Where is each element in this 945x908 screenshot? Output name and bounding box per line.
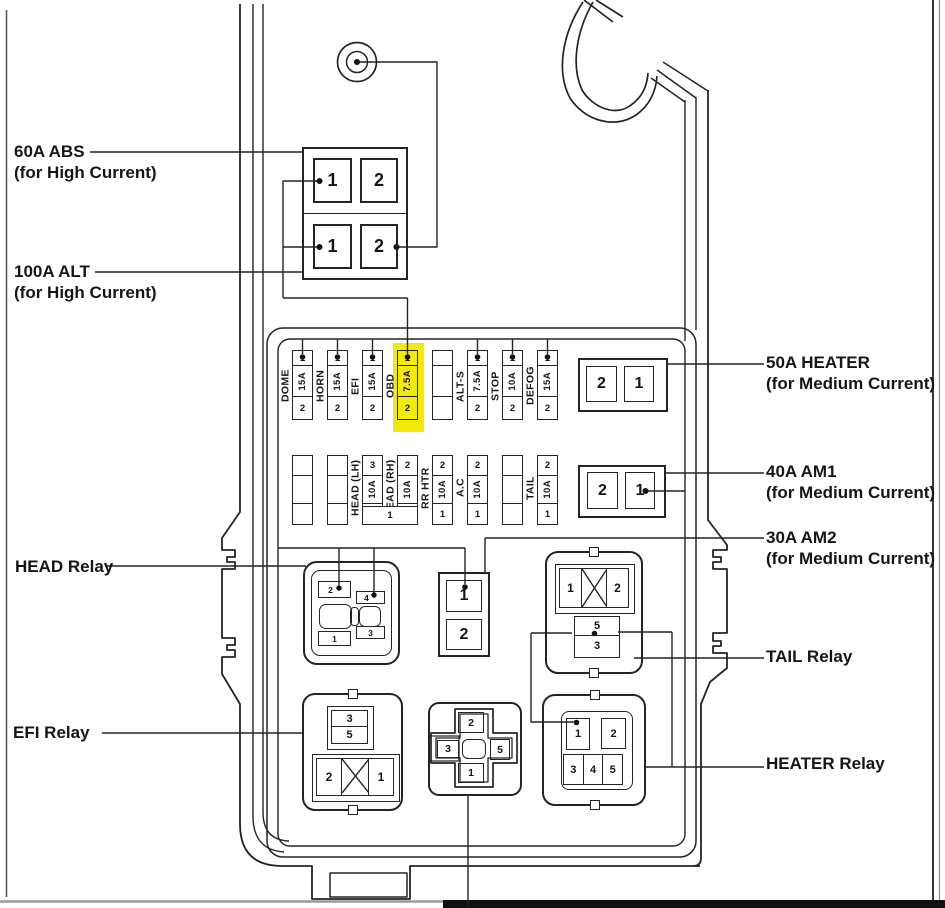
fuse-name: [419, 344, 432, 428]
fuse-amp: 7.5A: [472, 370, 483, 392]
fuse-name: OBD: [384, 344, 397, 428]
alt-terminal-2: 2: [360, 224, 398, 269]
fuse: [327, 455, 348, 525]
label-sub: (for Medium Current): [766, 373, 935, 394]
label-sub: (for Medium Current): [766, 482, 935, 503]
pin-4: 4: [356, 591, 385, 604]
label-100a-alt: 100A ALT (for High Current): [14, 261, 157, 303]
heater-50a-block: 2 1: [578, 358, 668, 412]
abs-terminal-1: 1: [313, 158, 352, 203]
pin-5: 5: [490, 739, 510, 760]
fuse-amp: 10A: [437, 480, 448, 499]
fuse-name: [489, 435, 502, 541]
pin-1: 1: [458, 763, 484, 783]
fuse-slot-tail: TAIL 2 10A 1: [523, 455, 558, 525]
pin-5: 5: [332, 727, 367, 743]
box-outer-wall-right: [693, 90, 727, 866]
fuse-amp: 10A: [367, 480, 378, 499]
alt-terminal-1: 1: [313, 224, 352, 269]
relay-tab: [590, 690, 600, 700]
relay-coil-x: [581, 569, 607, 607]
relay-contact-blob: [319, 604, 352, 629]
fuse: 1 7.5A 2: [467, 350, 488, 420]
fuse-amp: 15A: [542, 372, 553, 391]
terminal-2: 2: [586, 366, 617, 402]
terminal-1: 1: [446, 580, 482, 612]
bottom-tab-inner: [330, 873, 407, 897]
fuse-slot-horn: HORN 1 15A 2: [313, 350, 348, 420]
label-heater-relay: HEATER Relay: [766, 753, 885, 774]
pin-3: 3: [356, 626, 385, 639]
pin-2: 2: [318, 581, 351, 598]
fuse: 1 7.5A 2: [397, 350, 418, 420]
relay-contact-tab: [350, 607, 359, 626]
fuse: [502, 455, 523, 525]
fuse: 2 10A 1: [432, 455, 453, 525]
fuse-name: DOME: [279, 344, 292, 428]
fuse: 1 15A 2: [292, 350, 313, 420]
relay-tab: [589, 547, 599, 557]
fuse: 1 15A 2: [362, 350, 383, 420]
pin-4: 4: [583, 755, 604, 784]
fuse: [292, 455, 313, 525]
label-sub: (for High Current): [14, 282, 157, 303]
pin-2: 2: [458, 712, 484, 733]
fuse-amp: 10A: [542, 480, 553, 499]
relay-tab: [348, 805, 358, 815]
fuse-name: RR HTR: [419, 435, 432, 541]
fuse-slot-spare: [313, 455, 348, 525]
pin-3: 3: [332, 711, 367, 727]
fuse-slot-spare: [488, 455, 523, 525]
pin-2: 2: [317, 759, 341, 795]
fuse-slot-efi: EFI 1 15A 2: [348, 350, 383, 420]
fuse-amp: 10A: [402, 480, 413, 499]
fuse-slot-stop: STOP 1 10A 2: [488, 350, 523, 420]
fuse: 1 15A 2: [537, 350, 558, 420]
pin-2: 2: [607, 569, 628, 607]
head-fuses-shared-terminal: 1: [362, 506, 418, 525]
heater-relay: 1 2 3 4 5: [542, 694, 646, 806]
relay-tab: [348, 689, 358, 699]
label-title: 30A AM2: [766, 527, 935, 548]
abs-terminal-2: 2: [360, 158, 398, 203]
pin-5: 5: [603, 755, 622, 784]
terminal-1: 1: [624, 366, 654, 402]
am1-40a-block: 2 1: [578, 465, 666, 518]
label-tail-relay: TAIL Relay: [766, 646, 852, 667]
fuse-name: TAIL: [524, 435, 537, 541]
label-60a-abs: 60A ABS (for High Current): [14, 141, 157, 183]
fuse-name: HEAD (LH): [349, 435, 362, 541]
pin-2: 2: [601, 718, 626, 749]
label-title: 50A HEATER: [766, 352, 935, 373]
fuse: [432, 350, 453, 420]
fuse-row-top: DOME 1 15A 2 HORN 1 15A 2 EFI 1 15A 2: [278, 350, 558, 420]
fuse-name: STOP: [489, 344, 502, 428]
fuse-name: ALT-S: [454, 344, 467, 428]
fuse-slot-spare: [278, 455, 313, 525]
fuse-slot-rr-htr: RR HTR 2 10A 1: [418, 455, 453, 525]
fuse: 2 10A 1: [467, 455, 488, 525]
fuse-name: HEAD (RH): [384, 435, 397, 541]
pin-3: 3: [437, 740, 459, 758]
relay-center-blob: [462, 739, 486, 759]
fuse-slot-alt-s: ALT-S 1 7.5A 2: [453, 350, 488, 420]
pin-3: 3: [564, 755, 583, 784]
fuse-row-bottom: HEAD (LH) 3 10A HEAD (RH) 2 10A RR HTR 2…: [278, 455, 558, 525]
fuse-amp: 10A: [472, 480, 483, 499]
pin-1: 1: [369, 759, 393, 795]
am2-30a-block: 1 2: [438, 572, 490, 657]
label-head-relay: HEAD Relay: [15, 556, 113, 577]
scan-bottom-bar: [443, 900, 945, 908]
label-30a-am2: 30A AM2 (for Medium Current): [766, 527, 935, 569]
pin-1: 1: [566, 718, 590, 750]
fuse-name: [279, 435, 292, 541]
pin-5: 5: [575, 617, 619, 636]
fuse-slot-spare: [418, 350, 453, 420]
label-sub: (for High Current): [14, 162, 157, 183]
fuse-slot-defog: DEFOG 1 15A 2: [523, 350, 558, 420]
relay-tab: [589, 668, 599, 678]
label-50a-heater: 50A HEATER (for Medium Current): [766, 352, 935, 394]
fuse: 1 15A 2: [327, 350, 348, 420]
fuse-slot-obd-highlighted: OBD 1 7.5A 2: [383, 350, 418, 420]
fuse-box-diagram: 60A ABS (for High Current) 100A ALT (for…: [0, 0, 945, 908]
fuse: 1 10A 2: [502, 350, 523, 420]
tail-relay: 1 2 5 3: [545, 551, 643, 674]
relay-coil-x: [341, 759, 369, 795]
center-cross-relay: 2 3 5 1: [428, 702, 522, 796]
fuse-slot-ac: A.C 2 10A 1: [453, 455, 488, 525]
fuse: 2 10A 1: [537, 455, 558, 525]
relay-contact-blob: [359, 606, 381, 627]
pin-3: 3: [575, 636, 619, 655]
head-relay: 2 4 1 3: [303, 561, 400, 665]
fuse-amp: 7.5A: [402, 370, 413, 392]
box-inner-wall-left-1: [253, 4, 284, 852]
label-title: 40A AM1: [766, 461, 935, 482]
label-40a-am1: 40A AM1 (for Medium Current): [766, 461, 935, 503]
terminal-2: 2: [587, 472, 618, 509]
terminal-1: 1: [625, 472, 655, 509]
label-efi-relay: EFI Relay: [13, 722, 90, 743]
fuse-name: DEFOG: [524, 344, 537, 428]
label-title: 60A ABS: [14, 141, 157, 162]
label-sub: (for Medium Current): [766, 548, 935, 569]
fuse-amp: 15A: [297, 372, 308, 391]
fuse-name: [314, 435, 327, 541]
fuse-name: EFI: [349, 344, 362, 428]
label-title: 100A ALT: [14, 261, 157, 282]
fuse-name: HORN: [314, 344, 327, 428]
efi-relay: 3 5 2 1: [302, 693, 403, 811]
fuse-slot-dome: DOME 1 15A 2: [278, 350, 313, 420]
fuse-amp: 15A: [367, 372, 378, 391]
fuse-name: A.C: [454, 435, 467, 541]
relay-tab: [590, 800, 600, 810]
high-current-fuse-block: 1 2 1 2: [302, 147, 408, 280]
fuse-amp: 15A: [332, 372, 343, 391]
pin-1: 1: [560, 569, 581, 607]
terminal-2: 2: [446, 619, 482, 650]
pin-1: 1: [318, 631, 351, 646]
fuse-amp: 10A: [507, 372, 518, 391]
